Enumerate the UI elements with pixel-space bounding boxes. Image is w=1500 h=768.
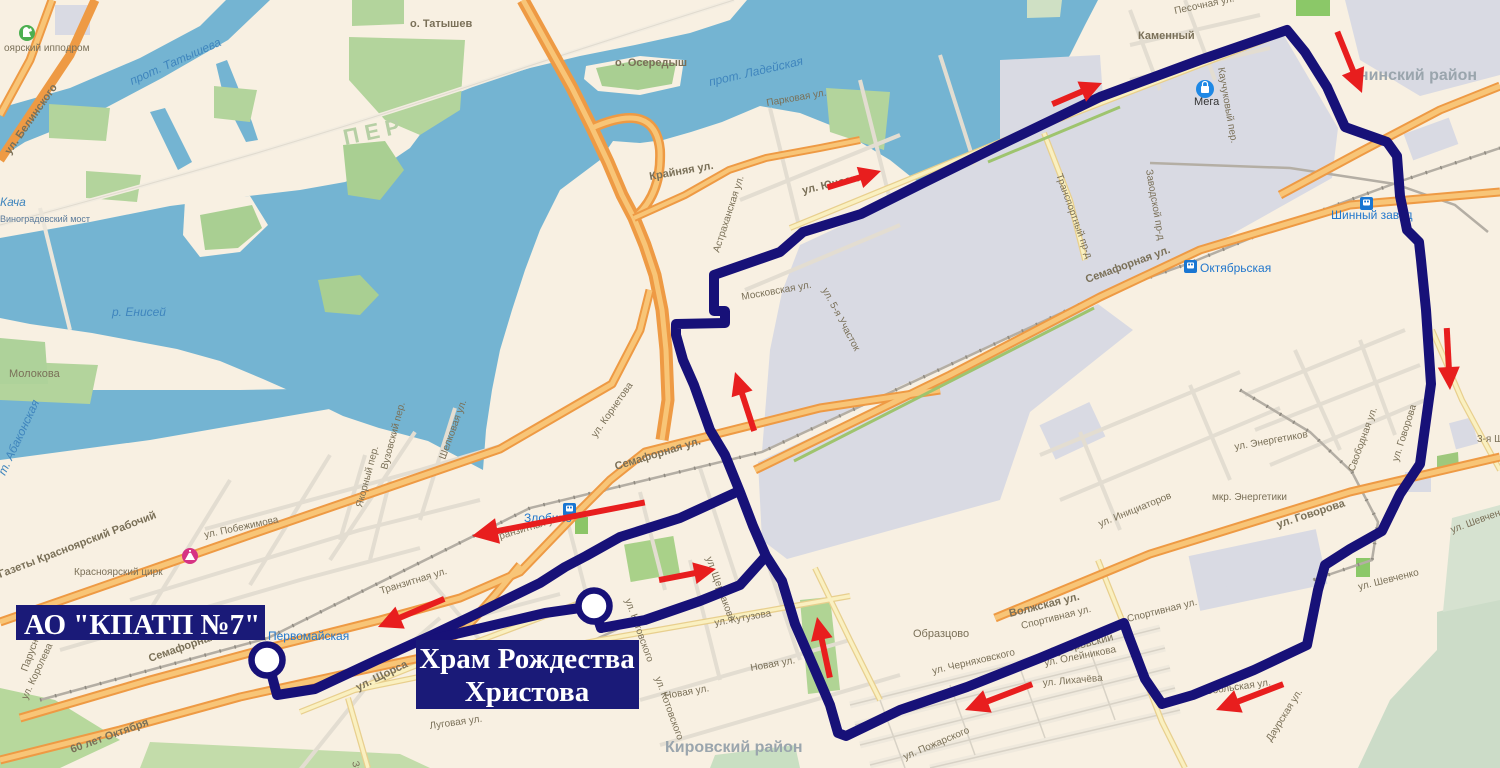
svg-text:Молокова: Молокова: [9, 368, 61, 380]
svg-text:о. Татышев: о. Татышев: [410, 18, 472, 30]
svg-text:мкр. Энергетики: мкр. Энергетики: [1212, 492, 1287, 503]
svg-text:Виноградовский мост: Виноградовский мост: [0, 214, 90, 224]
svg-text:енинский район: енинский район: [1350, 67, 1477, 84]
svg-text:о. Осередыш: о. Осередыш: [615, 57, 687, 69]
svg-text:р. Енисей: р. Енисей: [111, 305, 166, 319]
svg-text:Кировский район: Кировский район: [665, 739, 803, 756]
svg-text:Каменный: Каменный: [1138, 30, 1195, 42]
svg-text:Образцово: Образцово: [913, 628, 969, 640]
svg-text:АО "КПАТП №7": АО "КПАТП №7": [24, 609, 260, 641]
svg-text:Кача: Кача: [0, 195, 26, 209]
svg-text:Красноярский цирк: Красноярский цирк: [74, 567, 163, 578]
svg-text:3-я Ш: 3-я Ш: [1477, 434, 1500, 445]
svg-text:Храм Рождества: Храм Рождества: [419, 643, 635, 675]
svg-text:оярский ипподром: оярский ипподром: [4, 43, 90, 54]
svg-text:Мега: Мега: [1194, 96, 1220, 108]
svg-text:Христова: Христова: [465, 676, 590, 708]
svg-text:Первомайская: Первомайская: [268, 629, 349, 643]
svg-text:Октябрьская: Октябрьская: [1200, 261, 1271, 275]
